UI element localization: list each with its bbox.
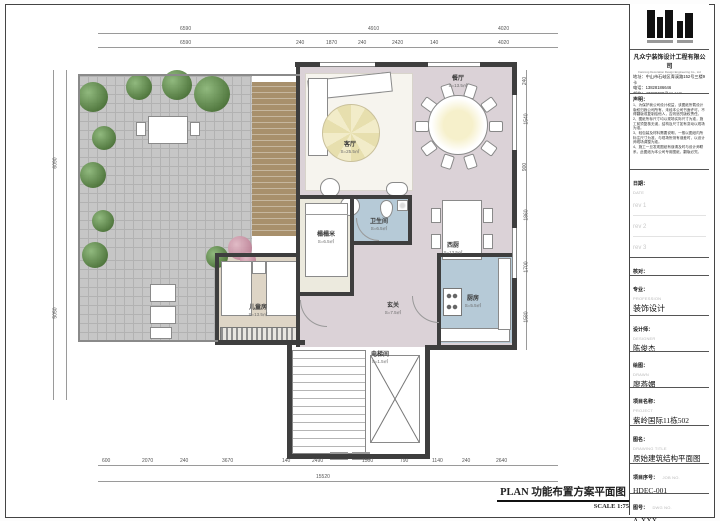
- dim-label: 3670: [222, 458, 233, 464]
- outdoor-sink: [150, 284, 176, 302]
- dim-label: 900: [522, 163, 528, 171]
- room-name: 卫生间: [354, 219, 404, 226]
- company-name-en: Fanzong Decoration Design Engineering Co…: [637, 70, 703, 74]
- drawing-footer: PLAN 功能布置方案平面图 SCALE 1:75: [497, 484, 629, 510]
- drawn-value: 廖燕媚: [633, 379, 706, 388]
- dim-label: 790: [400, 458, 408, 464]
- terrace-edge: [78, 340, 218, 342]
- room-area: S=5.5㎡: [448, 303, 498, 308]
- notes-title: 声明：: [633, 96, 706, 103]
- dining-chair: [415, 121, 429, 132]
- chair: [483, 234, 493, 249]
- dim-label: 140: [282, 458, 290, 464]
- drawing-title-text: PLAN 功能布置方案平面图: [497, 484, 629, 502]
- room-name: 西厨: [428, 243, 478, 250]
- drawing-title-section: 图名： DRAWING TITLE 原始建筑结构平面图: [630, 426, 709, 464]
- dwg-no-label-en: DWG NO.: [652, 505, 671, 510]
- dim-line: [98, 465, 558, 466]
- room-area: S=13.5㎡: [222, 312, 294, 317]
- round-dining-table: [428, 95, 488, 155]
- room-area: S=25.5㎡: [320, 149, 380, 154]
- window: [320, 62, 375, 67]
- room-label-elevator: 电梯间 S=1.5㎡: [352, 352, 408, 364]
- dim-label: 240: [358, 40, 366, 46]
- room-label-kitchen: 厨房 S=5.5㎡: [448, 296, 498, 308]
- wall-segment: [215, 340, 305, 345]
- dim-line: [98, 47, 558, 48]
- dim-label: 240: [522, 77, 528, 85]
- plant: [78, 82, 108, 112]
- note-item: 3、轻包装及材料需要说明，一般以图纸内所标注尺寸为准，与现场所测有误差时，以设计…: [633, 131, 706, 145]
- profession-value: 装饰设计: [633, 303, 706, 314]
- date-revision-section: 日期： DATE rev 1 rev 2 rev 3: [630, 170, 709, 258]
- company-address: 地址：中山市石岐区青溪路152号三楼9卡: [633, 74, 706, 85]
- job-no-value: HDEC-001: [633, 486, 706, 494]
- staircase: [292, 350, 366, 454]
- drawing-title-value: 原始建筑结构平面图: [633, 453, 706, 464]
- drawing-scale-text: SCALE 1:75: [497, 503, 629, 510]
- dim-line: [98, 481, 558, 482]
- wall-segment: [287, 454, 430, 459]
- wall-segment: [408, 195, 412, 245]
- project-value: 紫岭国际11栋502: [633, 415, 706, 426]
- drawn-label-en: DRAWN: [633, 372, 706, 377]
- terrace-edge: [78, 74, 300, 76]
- room-name: 厨房: [448, 296, 498, 303]
- bench-rug: [220, 327, 300, 341]
- company-section: 凡众宁装饰设计工程有限公司 Fanzong Decoration Design …: [630, 50, 709, 94]
- profession-label: 专业：: [633, 287, 648, 293]
- outdoor-counter: [150, 306, 176, 324]
- approved-label: 核对：: [633, 269, 648, 275]
- terrace-edge: [78, 74, 80, 342]
- room-area: S=13.5㎡: [430, 83, 486, 88]
- profession-section: 专业： PROFESSION 装饰设计: [630, 276, 709, 316]
- window: [512, 228, 517, 278]
- room-name: 客厅: [320, 142, 380, 149]
- window: [428, 62, 480, 67]
- pet-bed: [386, 182, 408, 196]
- dwg-no-value: A-XXX: [633, 516, 706, 521]
- wall-segment: [350, 241, 412, 245]
- drawing-title-label: 图名：: [633, 437, 648, 443]
- drawn-label: 绘图：: [633, 363, 648, 369]
- terrace-table: [148, 116, 188, 144]
- room-area: S=6.5㎡: [354, 226, 404, 231]
- designer-value: 陈俊杰: [633, 343, 706, 352]
- nightstand: [252, 261, 266, 274]
- company-logo-icon: [643, 9, 697, 47]
- dim-label: 1700: [524, 261, 530, 272]
- logo-section: [630, 4, 709, 50]
- designer-label-en: DESIGNER: [633, 336, 706, 341]
- kitchen-counter-side: [498, 258, 511, 330]
- dining-chair: [489, 121, 503, 132]
- room-name: 榻榻米: [300, 232, 352, 239]
- job-no-label-en: JOB NO.: [662, 475, 679, 480]
- drawing-title-label-en: DRAWING TITLE: [633, 446, 706, 451]
- elevator-x-icon: [371, 356, 419, 442]
- dim-line: [66, 70, 67, 400]
- dim-label: 240: [296, 40, 304, 46]
- plant: [194, 76, 230, 112]
- room-label-west-kitchen: 西厨 S=13.5㎡: [428, 243, 478, 255]
- bed-pillow-line: [305, 214, 348, 215]
- wall-segment: [297, 195, 412, 199]
- dim-label: 1540: [524, 113, 530, 124]
- dim-label: 1140: [432, 458, 443, 464]
- wall-segment: [215, 253, 219, 343]
- job-no-section: 项目序号： JOB NO. HDEC-001: [630, 464, 709, 494]
- date-label: 日期：: [633, 181, 648, 187]
- sink-icon: [397, 200, 408, 211]
- note-item: 1、为保护我公司设计权益，该图纸所载设计版权归我公司所有，未经本公司书面许可，不…: [633, 103, 706, 117]
- dim-label: 4020: [498, 26, 509, 32]
- dim-label: 6590: [180, 26, 191, 32]
- elevator-shaft: [370, 355, 420, 443]
- notes-section: 声明： 1、为保护我公司设计权益，该图纸所载设计版权归我公司所有，未经本公司书面…: [630, 94, 709, 170]
- terrace-floor-lower: [80, 255, 216, 341]
- wall-segment: [215, 253, 300, 257]
- dim-line: [98, 33, 558, 34]
- room-area: S=13.5㎡: [428, 250, 478, 255]
- dim-label: 4020: [498, 40, 509, 46]
- company-name: 凡众宁装饰设计工程有限公司: [633, 52, 706, 70]
- room-label-bath: 卫生间 S=6.5㎡: [354, 219, 404, 231]
- room-name: 电梯间: [352, 352, 408, 359]
- dwg-no-section: 图号： DWG NO. A-XXX: [630, 494, 709, 521]
- note-item: 2、图纸所标尺寸均以现场实际尺寸为准，施工前须复核无误，结构及尺寸如有变动以现场…: [633, 117, 706, 131]
- dim-label: 600: [102, 458, 110, 464]
- dim-label-total: 15520: [316, 474, 330, 480]
- room-area: S=6.5㎡: [300, 239, 352, 244]
- room-name: 儿童房: [222, 305, 294, 312]
- job-no-label: 项目序号：: [633, 475, 658, 481]
- drawn-section: 绘图： DRAWN 廖燕媚: [630, 352, 709, 388]
- title-block: 凡众宁装饰设计工程有限公司 Fanzong Decoration Design …: [629, 4, 709, 515]
- dining-set: [420, 87, 496, 163]
- dim-label: 1860: [524, 209, 530, 220]
- dim-label: 2640: [496, 458, 507, 464]
- room-label-entry: 玄关 S=7.5㎡: [368, 303, 418, 315]
- project-label-en: PROJECT: [633, 408, 706, 413]
- project-label: 项目名称：: [633, 399, 658, 405]
- plant: [82, 242, 108, 268]
- plant: [92, 126, 116, 150]
- project-section: 项目名称： PROJECT 紫岭国际11栋502: [630, 388, 709, 426]
- room-area: S=1.5㎡: [352, 359, 408, 364]
- dim-label: 1870: [326, 40, 337, 46]
- revision-row: rev 1: [633, 195, 706, 216]
- profession-label-en: PROFESSION: [633, 296, 706, 301]
- room-name: 玄关: [368, 303, 418, 310]
- plant: [80, 162, 106, 188]
- dim-label: 2070: [142, 458, 153, 464]
- dim-label: 1500: [362, 458, 373, 464]
- room-area: S=7.5㎡: [368, 310, 418, 315]
- terrace-chair: [136, 122, 146, 136]
- dwg-no-label: 图号：: [633, 505, 648, 511]
- dim-label: 5050: [53, 307, 59, 318]
- approved-section: 核对： APPROVED: [630, 258, 709, 276]
- wall-segment: [300, 292, 354, 296]
- dim-label: 6590: [180, 40, 191, 46]
- plant: [126, 74, 152, 100]
- room-name: 餐厅: [430, 76, 486, 83]
- dim-label: 4910: [368, 26, 379, 32]
- wood-deck: [252, 82, 300, 236]
- chair: [483, 208, 493, 223]
- terrace-chair: [190, 122, 200, 136]
- designer-section: 设计师： DESIGNER 陈俊杰: [630, 316, 709, 352]
- designer-label: 设计师：: [633, 327, 653, 333]
- dim-label: 1580: [524, 311, 530, 322]
- dim-label: 240: [462, 458, 470, 464]
- dim-label: 240: [180, 458, 188, 464]
- window: [512, 95, 517, 150]
- dim-label: 140: [430, 40, 438, 46]
- dim-line: [53, 70, 54, 400]
- plant: [92, 210, 114, 232]
- revision-row: rev 3: [633, 237, 706, 258]
- room-label-tatami: 榻榻米 S=6.5㎡: [300, 232, 352, 244]
- wall-segment: [350, 195, 354, 295]
- dim-label: 2420: [392, 40, 403, 46]
- outdoor-cabinet: [150, 327, 172, 339]
- kitchen-counter: [440, 328, 510, 342]
- wall-segment: [425, 345, 430, 458]
- wall-segment: [287, 345, 292, 457]
- note-item: 4、施工一旦发现图纸有误请及时与设计师联系，此图纸为本公司专用图纸，翻版必究。: [633, 145, 706, 154]
- wall-segment: [430, 345, 517, 350]
- room-label-living: 客厅 S=25.5㎡: [320, 142, 380, 154]
- chair: [431, 208, 441, 223]
- drawing-sheet-canvas: 客厅 S=25.5㎡ 餐厅 S=13.5㎡ 西厨 S=13.5㎡ 厨房 S=5.…: [0, 0, 720, 521]
- room-label-twin: 儿童房 S=13.5㎡: [222, 305, 294, 317]
- dim-label: 2490: [312, 458, 323, 464]
- revision-row: rev 2: [633, 216, 706, 237]
- dim-label: 6090: [53, 157, 59, 168]
- room-label-dining: 餐厅 S=13.5㎡: [430, 76, 486, 88]
